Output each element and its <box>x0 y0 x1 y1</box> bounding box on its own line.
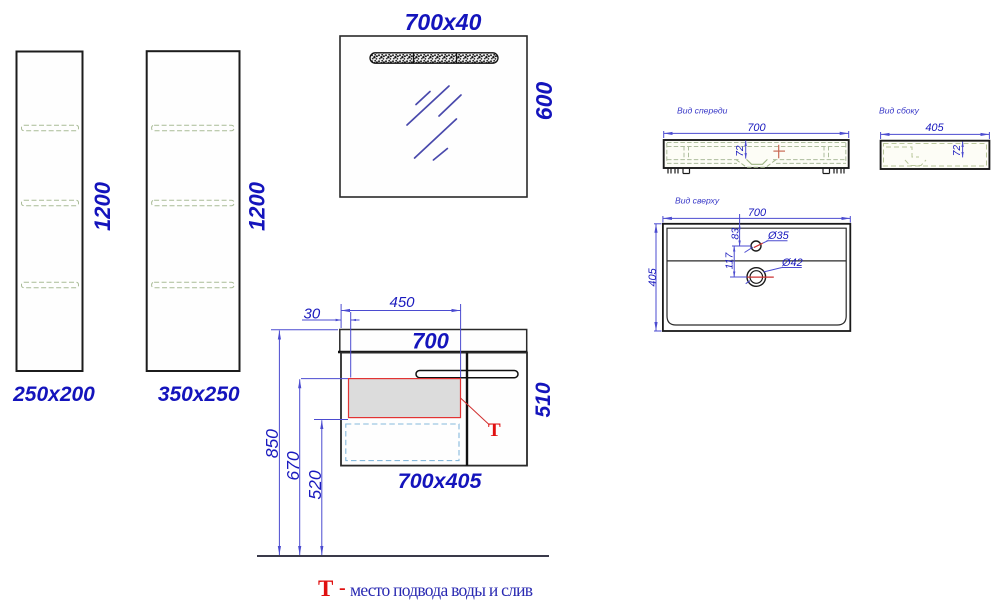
svg-text:1200: 1200 <box>90 181 115 231</box>
svg-text:Ø42: Ø42 <box>781 257 803 269</box>
svg-text:405: 405 <box>647 267 659 286</box>
svg-text:700: 700 <box>748 207 767 219</box>
svg-text:670: 670 <box>283 451 303 480</box>
svg-text:T: T <box>318 576 333 601</box>
svg-text:520: 520 <box>305 470 325 499</box>
svg-text:350x250: 350x250 <box>158 383 240 406</box>
svg-text:700: 700 <box>412 329 449 354</box>
svg-text:117: 117 <box>723 251 735 269</box>
svg-text:83: 83 <box>729 228 741 240</box>
svg-text:700x405: 700x405 <box>398 469 483 493</box>
svg-text:30: 30 <box>304 306 321 323</box>
svg-text:450: 450 <box>389 294 415 311</box>
svg-text:72: 72 <box>952 145 963 157</box>
svg-text:Вид сверху: Вид сверху <box>675 196 720 206</box>
svg-text:250x200: 250x200 <box>12 383 95 406</box>
svg-text:700x40: 700x40 <box>405 9 482 35</box>
svg-text:Ø35: Ø35 <box>767 230 790 242</box>
svg-text:T: T <box>488 420 501 441</box>
svg-text:Вид спереди: Вид спереди <box>677 106 728 116</box>
svg-text:600: 600 <box>531 82 557 121</box>
svg-text:510: 510 <box>532 382 555 417</box>
svg-text:Вид сбоку: Вид сбоку <box>879 106 920 116</box>
svg-text:72: 72 <box>735 145 746 157</box>
svg-text:850: 850 <box>262 429 282 458</box>
svg-text:405: 405 <box>925 122 944 134</box>
svg-text:место подвода воды и слив: место подвода воды и слив <box>350 580 533 600</box>
svg-text:1200: 1200 <box>245 181 270 231</box>
svg-text:-: - <box>339 577 346 599</box>
svg-text:700: 700 <box>747 122 766 134</box>
